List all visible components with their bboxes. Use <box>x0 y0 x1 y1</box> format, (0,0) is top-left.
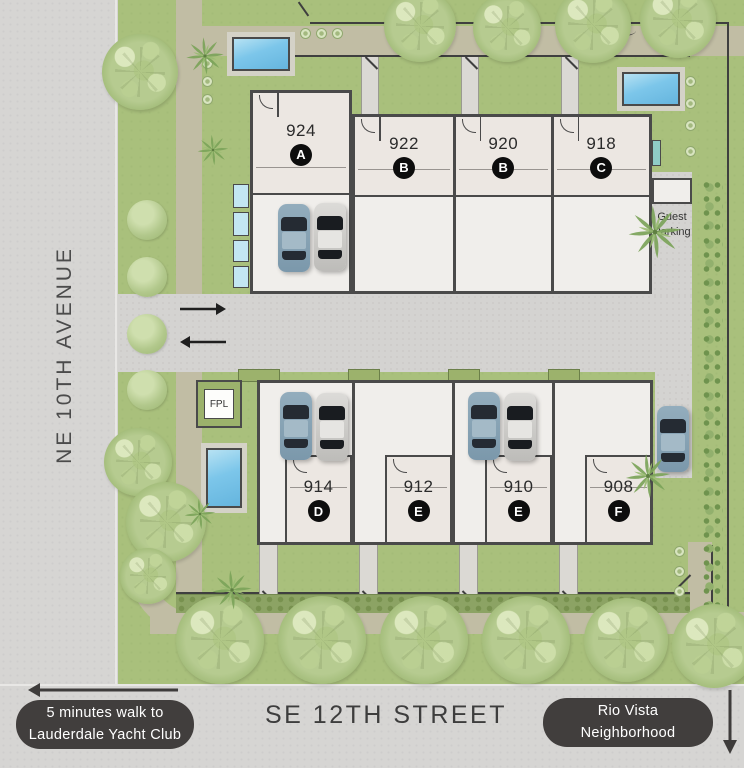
palm-tree-icon <box>195 132 231 168</box>
flower-bush-icon <box>685 146 696 157</box>
unit-number: 922 <box>389 134 419 154</box>
unit-label-914: 914 D <box>287 457 350 542</box>
unit-room-920: 920 B <box>456 117 552 197</box>
tree-icon <box>102 34 178 110</box>
bush-icon <box>127 370 167 410</box>
palm-tree-icon <box>209 567 255 613</box>
flower-bush-icon <box>316 28 327 39</box>
unit-label-920: 920 B <box>456 117 552 195</box>
unit-number: 910 <box>504 477 534 497</box>
unit-label-912: 912 E <box>387 457 450 542</box>
unit-letter-badge: F <box>608 500 630 522</box>
street-label-se-12th-street: SE 12TH STREET <box>246 701 526 730</box>
unit-room-924: 924 A <box>253 93 349 195</box>
unit-label-922: 922 B <box>355 117 453 195</box>
flower-bush-icon <box>300 28 311 39</box>
car-blue <box>280 392 312 460</box>
rear-window <box>318 250 342 259</box>
unit-label-924: 924 A <box>253 93 349 193</box>
windshield <box>283 405 309 419</box>
car-roof <box>472 420 496 437</box>
unit-letter-badge: B <box>492 157 514 179</box>
rio-vista-callout-line1: Rio Vista <box>598 701 658 723</box>
fpl-pad: FPL <box>196 380 242 428</box>
hedge-east <box>701 178 723 608</box>
flower-bush-icon <box>685 120 696 131</box>
windshield <box>319 406 345 420</box>
windshield <box>507 406 533 420</box>
car-roof <box>282 232 306 249</box>
unit-label-910: 910 E <box>487 457 550 542</box>
tree-icon <box>278 596 366 684</box>
car-roof <box>508 421 532 438</box>
exit-arrow-out-icon <box>180 335 226 349</box>
tree-icon <box>120 548 176 604</box>
windshield <box>281 217 307 231</box>
tree-icon <box>380 596 468 684</box>
windshield <box>471 405 497 419</box>
rear-window <box>508 440 532 449</box>
boundary-east <box>727 22 729 614</box>
street-label-ne-10th-avenue: NE 10TH AVENUE <box>53 229 79 481</box>
unit-label-918: 918 C <box>554 117 650 195</box>
car-silver <box>504 393 536 461</box>
yacht-club-callout: 5 minutes walk to Lauderdale Yacht Club <box>16 700 194 749</box>
pool-918 <box>622 72 680 106</box>
car-silver <box>316 393 348 461</box>
party-wall <box>552 383 555 542</box>
car-blue <box>468 392 500 460</box>
curb-line-left <box>115 0 117 686</box>
glass-door <box>233 266 249 288</box>
unit-letter-badge: E <box>508 500 530 522</box>
palm-tree-icon <box>182 496 218 532</box>
flower-bush-icon <box>674 586 685 597</box>
utility-box <box>652 140 661 166</box>
entry-arrow-in-icon <box>180 302 226 316</box>
rio-vista-arrow-icon <box>722 690 738 754</box>
rear-window <box>284 439 308 448</box>
flower-bush-icon <box>674 546 685 557</box>
unit-number: 912 <box>404 477 434 497</box>
unit-letter-badge: D <box>308 500 330 522</box>
flower-bush-icon <box>685 98 696 109</box>
windshield <box>660 419 686 433</box>
bush-icon <box>127 257 167 297</box>
glass-door <box>233 212 249 236</box>
bush-icon <box>127 200 167 240</box>
flower-bush-icon <box>674 566 685 577</box>
unit-room-922: 922 B <box>355 117 453 197</box>
unit-room-914: 914 D <box>285 455 352 542</box>
yacht-club-callout-line1: 5 minutes walk to <box>46 703 163 725</box>
palm-tree-icon <box>622 450 674 502</box>
car-blue <box>278 204 310 272</box>
car-silver <box>314 203 346 271</box>
unit-number: 918 <box>586 134 616 154</box>
unit-room-912: 912 E <box>385 455 452 542</box>
rear-window <box>472 439 496 448</box>
glass-door <box>233 240 249 262</box>
palm-tree-icon <box>183 34 227 78</box>
unit-number: 914 <box>304 477 334 497</box>
party-wall <box>352 383 355 542</box>
unit-letter-badge: E <box>408 500 430 522</box>
flower-bush-icon <box>685 76 696 87</box>
car-roof <box>284 420 308 437</box>
unit-number: 924 <box>286 121 316 141</box>
unit-room-910: 910 E <box>485 455 552 542</box>
tree-icon <box>584 598 668 682</box>
unit-number: 920 <box>488 134 518 154</box>
fpl-box: FPL <box>204 389 234 419</box>
unit-letter-badge: B <box>393 157 415 179</box>
yacht-club-callout-line2: Lauderdale Yacht Club <box>29 725 181 747</box>
palm-tree-icon <box>624 201 686 263</box>
car-roof <box>318 231 342 248</box>
site-plan: 924 A 922 B 920 B <box>0 0 744 768</box>
tree-icon <box>482 596 570 684</box>
bush-icon <box>127 314 167 354</box>
building-922-918: 922 B 920 B 918 C <box>352 114 652 294</box>
yacht-club-arrow-icon <box>28 682 180 698</box>
rear-window <box>320 440 344 449</box>
rear-window <box>282 251 306 260</box>
party-wall <box>452 383 455 542</box>
unit-room-918: 918 C <box>554 117 650 197</box>
rio-vista-callout-line2: Neighborhood <box>581 723 676 745</box>
car-roof <box>320 421 344 438</box>
glass-door <box>233 184 249 208</box>
windshield <box>317 216 343 230</box>
flower-bush-icon <box>332 28 343 39</box>
flower-bush-icon <box>202 94 213 105</box>
unit-letter-badge: C <box>590 157 612 179</box>
rio-vista-callout: Rio Vista Neighborhood <box>543 698 713 747</box>
car-roof <box>661 434 685 451</box>
unit-letter-badge: A <box>290 144 312 166</box>
pool-924 <box>232 37 290 71</box>
